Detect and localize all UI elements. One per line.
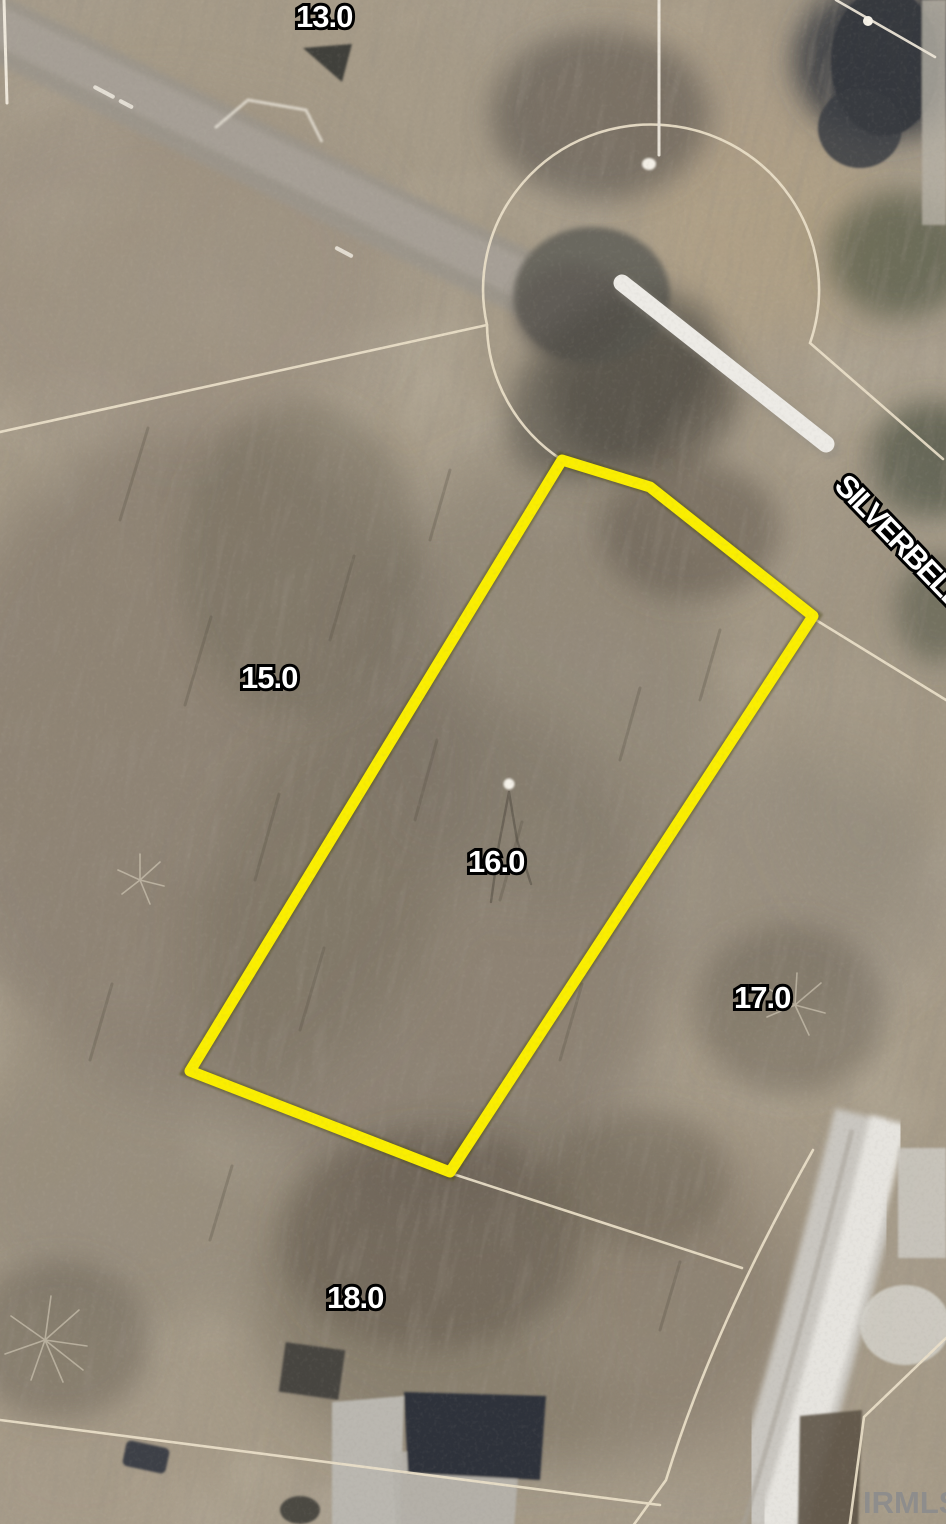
lot-label-16: 16.0 [468,844,524,879]
aerial-parcel-map[interactable]: 13.0 15.0 16.0 17.0 18.0 SILVERBELL IRML… [0,0,946,1524]
lot-label-13: 13.0 [296,0,352,34]
lot-label-17: 17.0 [734,980,790,1015]
aerial-map-canvas: 13.0 15.0 16.0 17.0 18.0 SILVERBELL IRML… [0,0,946,1524]
lot-label-15: 15.0 [241,660,297,695]
lot-label-18: 18.0 [327,1280,383,1315]
grain-overlay-light [0,0,946,1524]
irmls-watermark: IRMLS [863,1485,946,1520]
